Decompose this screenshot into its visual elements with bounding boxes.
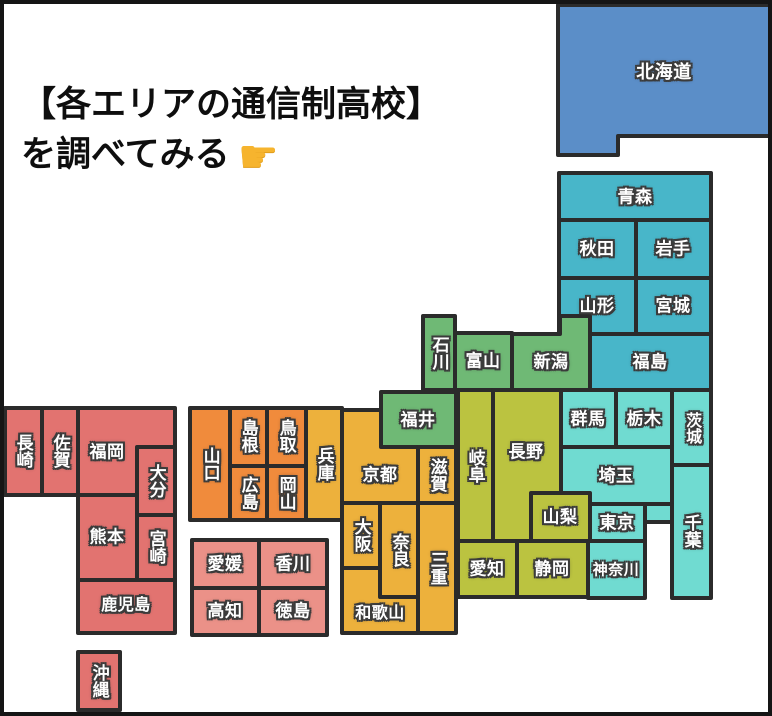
prefecture-shizuoka-label: 静岡 — [535, 560, 570, 577]
prefecture-kumamoto-label: 熊本 — [90, 528, 125, 545]
prefecture-niigata-label: 新潟 — [534, 353, 569, 370]
prefecture-aomori-label: 青森 — [618, 188, 653, 205]
prefecture-hiroshima-label: 広島 — [239, 476, 256, 510]
prefecture-tokyo-label: 東京 — [600, 514, 635, 531]
prefecture-oita-label: 大分 — [147, 464, 164, 498]
prefecture-nagano-label: 長野 — [509, 443, 544, 460]
kanto-bay-block — [645, 504, 672, 522]
prefecture-hyogo-label: 兵庫 — [315, 447, 332, 481]
prefecture-iwate-label: 岩手 — [656, 240, 691, 257]
prefecture-kanagawa-label: 神奈川 — [593, 562, 640, 577]
prefecture-yamagata-label: 山形 — [580, 297, 615, 314]
prefecture-kyoto-label: 京都 — [363, 466, 398, 483]
prefecture-aichi-label: 愛知 — [470, 560, 505, 577]
prefecture-ibaraki-label: 茨城 — [683, 412, 699, 444]
prefecture-wakayama-label: 和歌山 — [355, 606, 405, 622]
prefecture-okinawa-label: 沖縄 — [90, 664, 107, 698]
prefecture-hokkaido-label: 北海道 — [636, 63, 692, 81]
prefecture-saitama-label: 埼玉 — [599, 467, 634, 484]
prefecture-yamanashi-label: 山梨 — [543, 508, 578, 525]
prefecture-tottori-label: 鳥取 — [277, 419, 294, 453]
prefecture-nagasaki-label: 長崎 — [14, 434, 31, 468]
prefecture-kochi-label: 高知 — [208, 602, 243, 619]
prefecture-kagawa-label: 香川 — [276, 555, 311, 572]
prefecture-chiba-label: 千葉 — [682, 514, 699, 548]
prefecture-shiga-label: 滋賀 — [428, 458, 445, 492]
prefecture-akita-label: 秋田 — [580, 240, 615, 257]
prefecture-ehime-label: 愛媛 — [208, 555, 243, 572]
prefecture-nara-label: 奈良 — [390, 533, 407, 567]
prefecture-gunma-label: 群馬 — [571, 410, 606, 427]
prefecture-mie-label: 三重 — [428, 551, 445, 585]
prefecture-tochigi-label: 栃木 — [627, 410, 662, 427]
prefecture-gifu-label: 岐阜 — [466, 449, 483, 483]
prefecture-tokushima-label: 徳島 — [276, 602, 311, 619]
prefecture-okayama-label: 岡山 — [277, 476, 294, 510]
prefecture-fukuoka-label: 福岡 — [90, 443, 125, 460]
prefecture-miyazaki-label: 宮崎 — [147, 530, 164, 564]
prefecture-fukushima-label: 福島 — [633, 353, 668, 370]
prefecture-osaka-label: 大阪 — [352, 518, 369, 552]
prefecture-toyama-label: 富山 — [466, 352, 501, 369]
infographic-canvas: 【各エリアの通信制高校】 を調べてみる☛ — [0, 0, 772, 716]
prefecture-fukui-label: 福井 — [401, 411, 436, 428]
prefecture-yamaguchi-label: 山口 — [201, 447, 218, 481]
prefecture-kagoshima-label: 鹿児島 — [101, 598, 151, 614]
prefecture-miyagi-label: 宮城 — [656, 297, 691, 314]
prefecture-ishikawa-label: 石川 — [430, 336, 447, 370]
prefecture-shimane-label: 島根 — [239, 419, 256, 453]
prefecture-saga-label: 佐賀 — [51, 434, 68, 468]
